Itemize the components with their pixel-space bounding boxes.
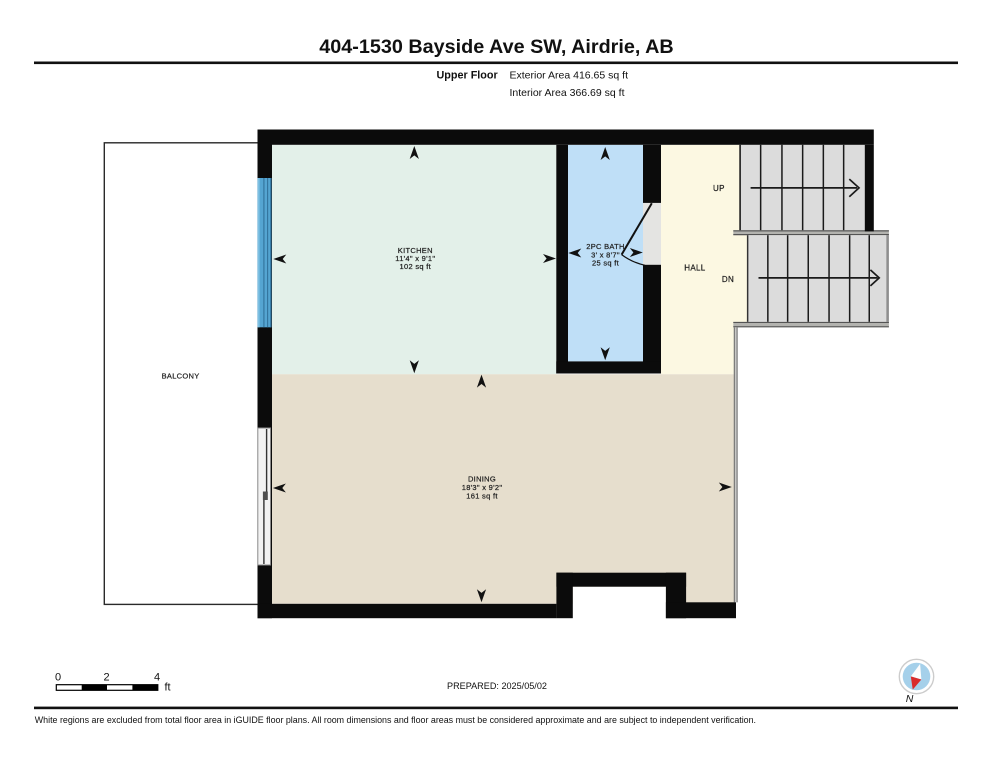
svg-text:0: 0: [55, 672, 61, 684]
svg-text:N: N: [906, 693, 914, 705]
svg-text:4: 4: [154, 672, 160, 684]
svg-text:HALL: HALL: [684, 263, 705, 272]
svg-text:DN: DN: [722, 275, 734, 284]
svg-text:UP: UP: [713, 184, 725, 193]
svg-text:PREPARED: 2025/05/02: PREPARED: 2025/05/02: [447, 681, 547, 691]
svg-text:BALCONY: BALCONY: [162, 371, 200, 380]
svg-text:White regions are excluded fro: White regions are excluded from total fl…: [35, 715, 756, 725]
svg-text:404-1530 Bayside Ave SW, Airdr: 404-1530 Bayside Ave SW, Airdrie, AB: [319, 36, 673, 58]
svg-text:Interior Area 366.69 sq ft: Interior Area 366.69 sq ft: [510, 87, 625, 99]
svg-text:25 sq ft: 25 sq ft: [592, 259, 620, 268]
svg-text:2: 2: [104, 672, 110, 684]
svg-text:161 sq ft: 161 sq ft: [466, 491, 498, 500]
svg-text:ft: ft: [165, 682, 171, 694]
svg-text:102 sq ft: 102 sq ft: [400, 262, 432, 271]
svg-text:Exterior Area 416.65 sq ft: Exterior Area 416.65 sq ft: [510, 70, 629, 82]
svg-text:Upper Floor: Upper Floor: [437, 70, 499, 82]
